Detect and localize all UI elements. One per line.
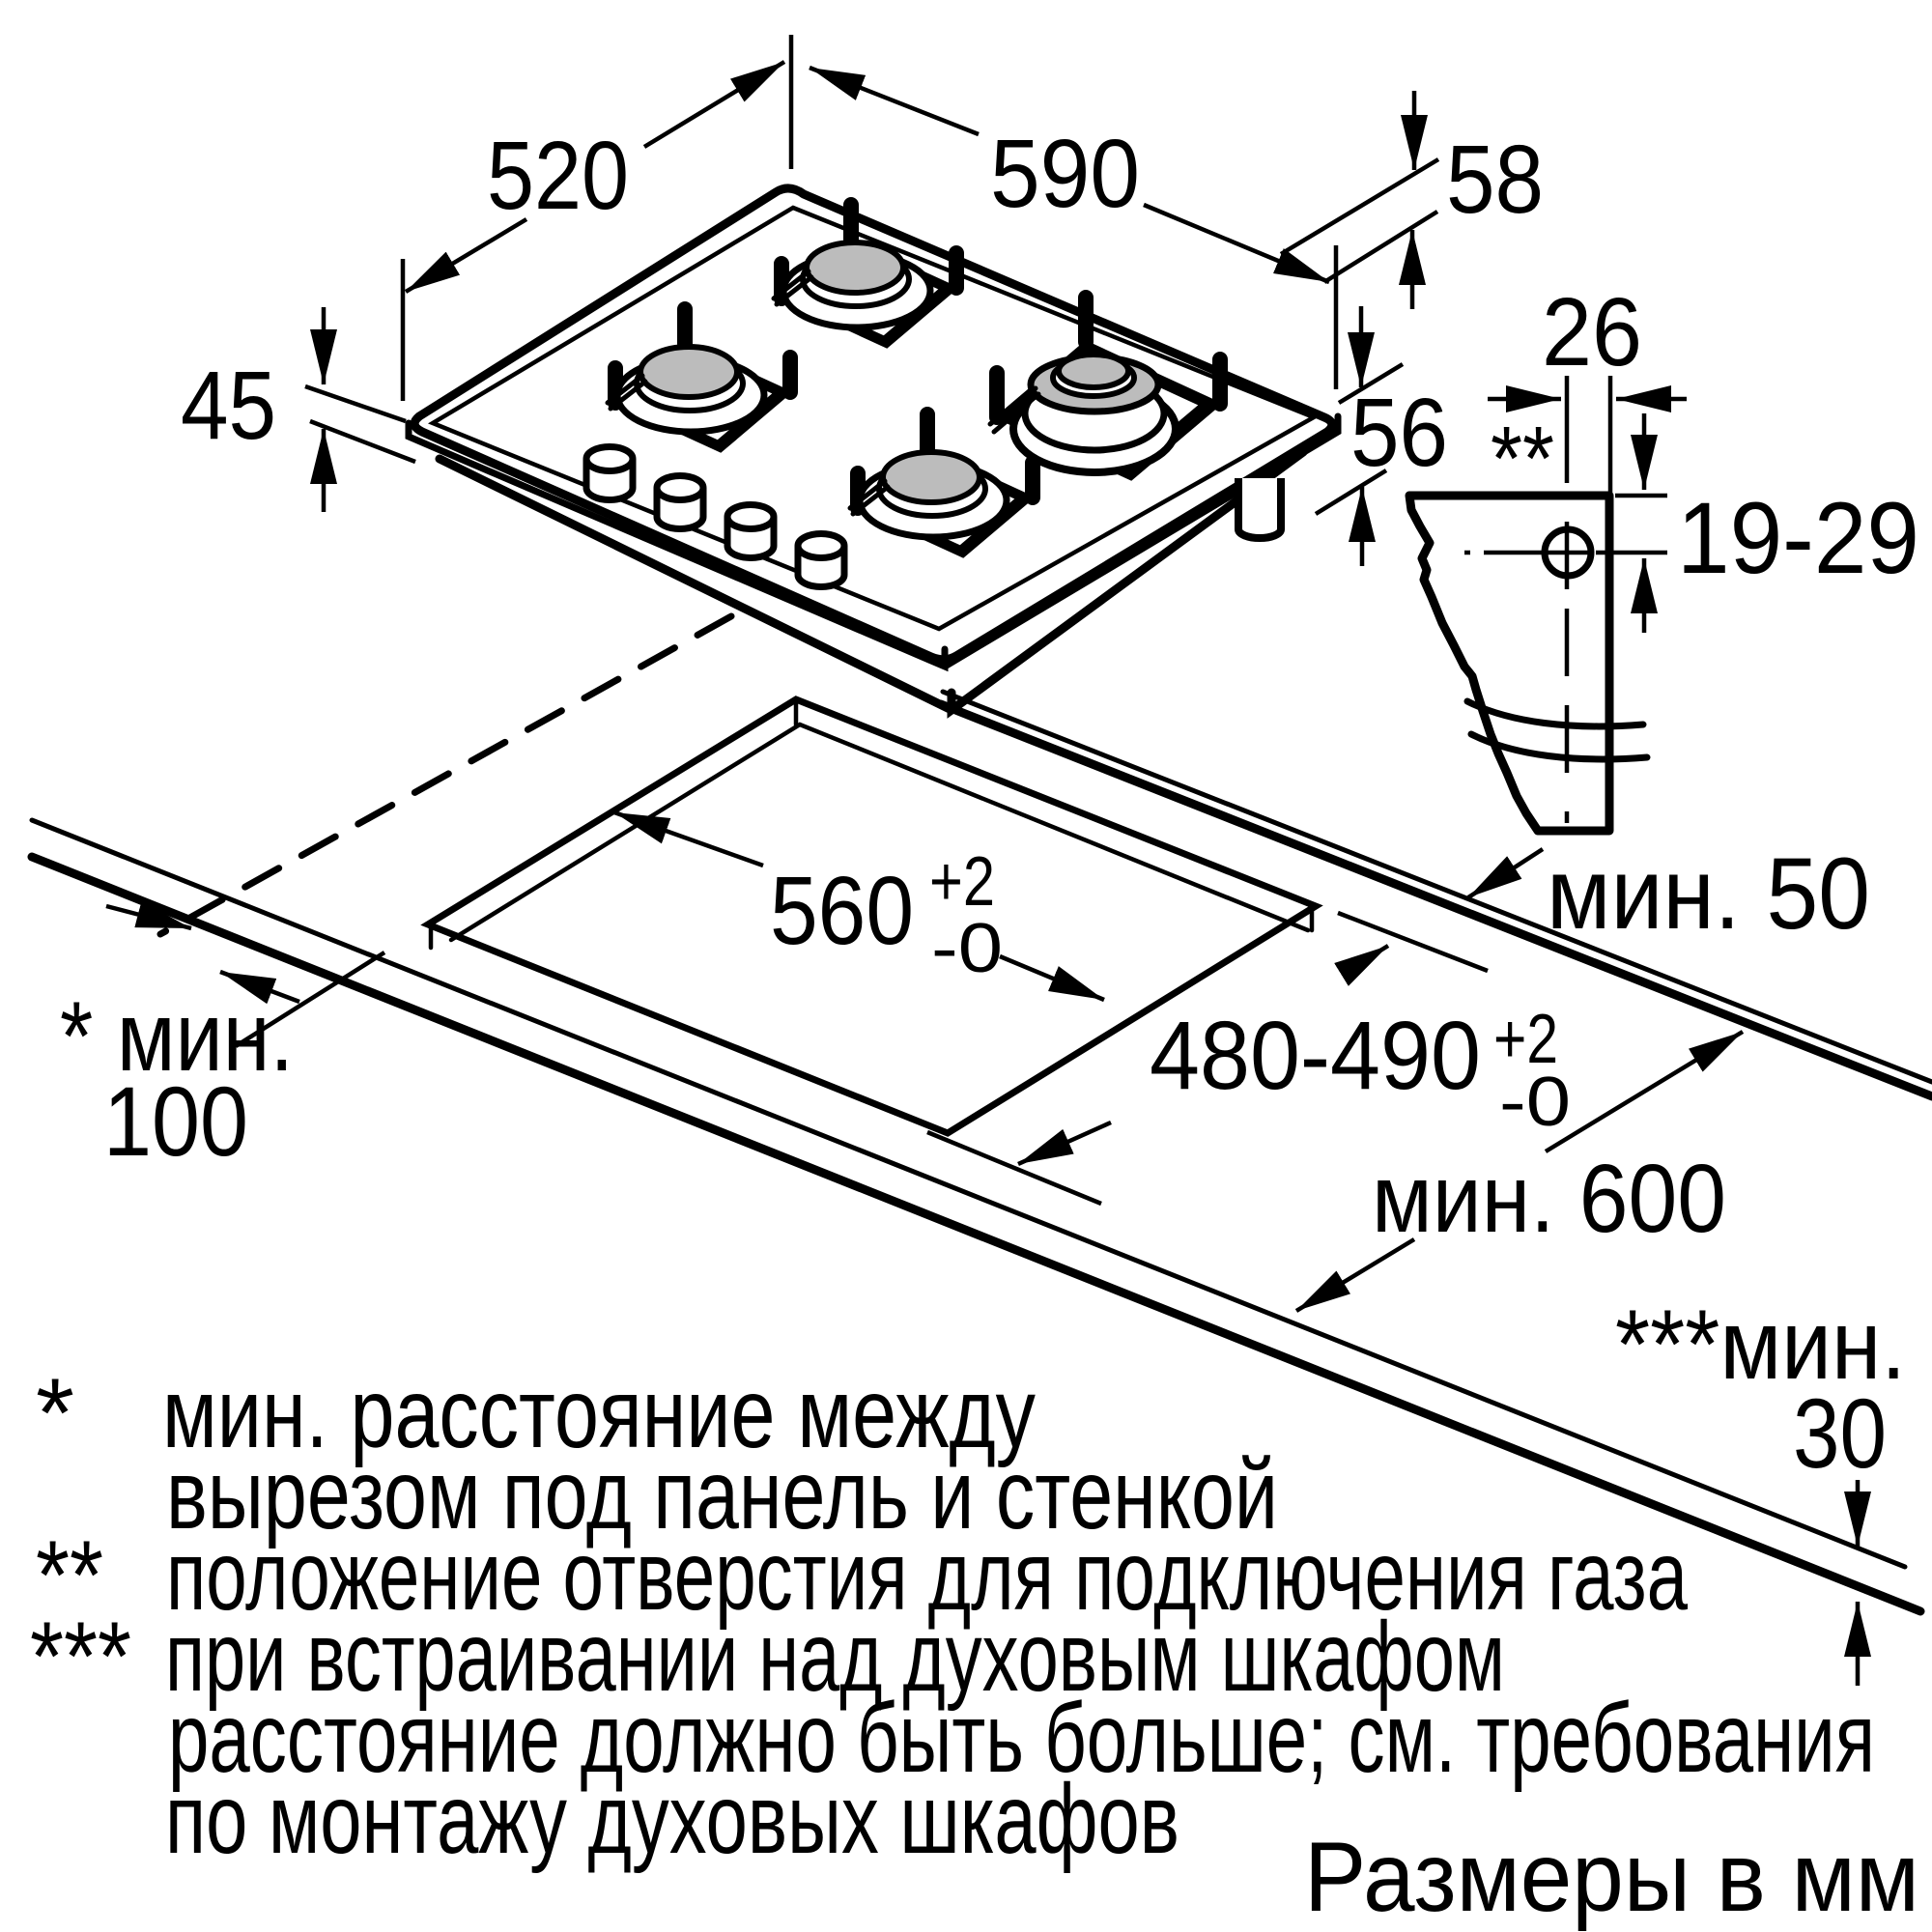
svg-text:58: 58 (1446, 126, 1544, 234)
svg-text:26: 26 (1542, 278, 1642, 386)
svg-text:-0: -0 (931, 910, 1003, 987)
svg-text:*: * (36, 1358, 74, 1468)
svg-text:**: ** (1491, 408, 1554, 510)
svg-text:520: 520 (487, 122, 629, 230)
svg-text:по монтажу духовых шкафов: по монтажу духовых шкафов (165, 1764, 1179, 1874)
svg-text:56: 56 (1350, 379, 1448, 487)
svg-text:+2: +2 (929, 843, 995, 921)
svg-text:мин. 600: мин. 600 (1372, 1145, 1726, 1253)
svg-text:19-29: 19-29 (1677, 482, 1919, 595)
svg-text:100: 100 (103, 1066, 248, 1177)
svg-text:мин. 50: мин. 50 (1547, 838, 1870, 951)
svg-text:***: *** (30, 1602, 131, 1712)
svg-text:480-490: 480-490 (1150, 1002, 1481, 1110)
svg-text:45: 45 (181, 352, 276, 460)
svg-text:30: 30 (1793, 1378, 1887, 1489)
svg-text:Размеры в мм: Размеры в мм (1304, 1822, 1919, 1932)
svg-text:590: 590 (990, 120, 1140, 228)
svg-text:560: 560 (770, 857, 914, 965)
svg-text:-0: -0 (1499, 1064, 1571, 1141)
